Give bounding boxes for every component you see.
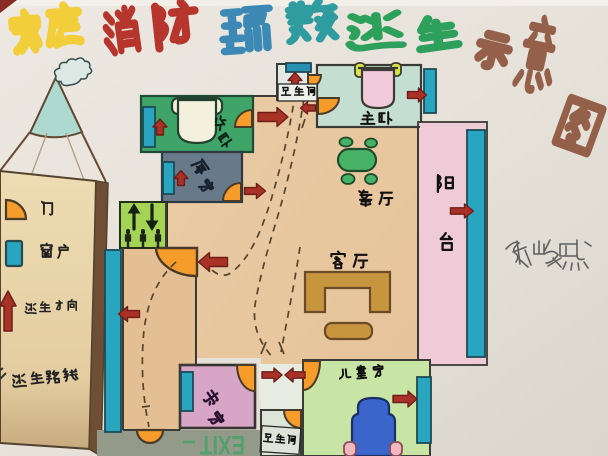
svg-text:EXIT: EXIT	[200, 429, 245, 456]
